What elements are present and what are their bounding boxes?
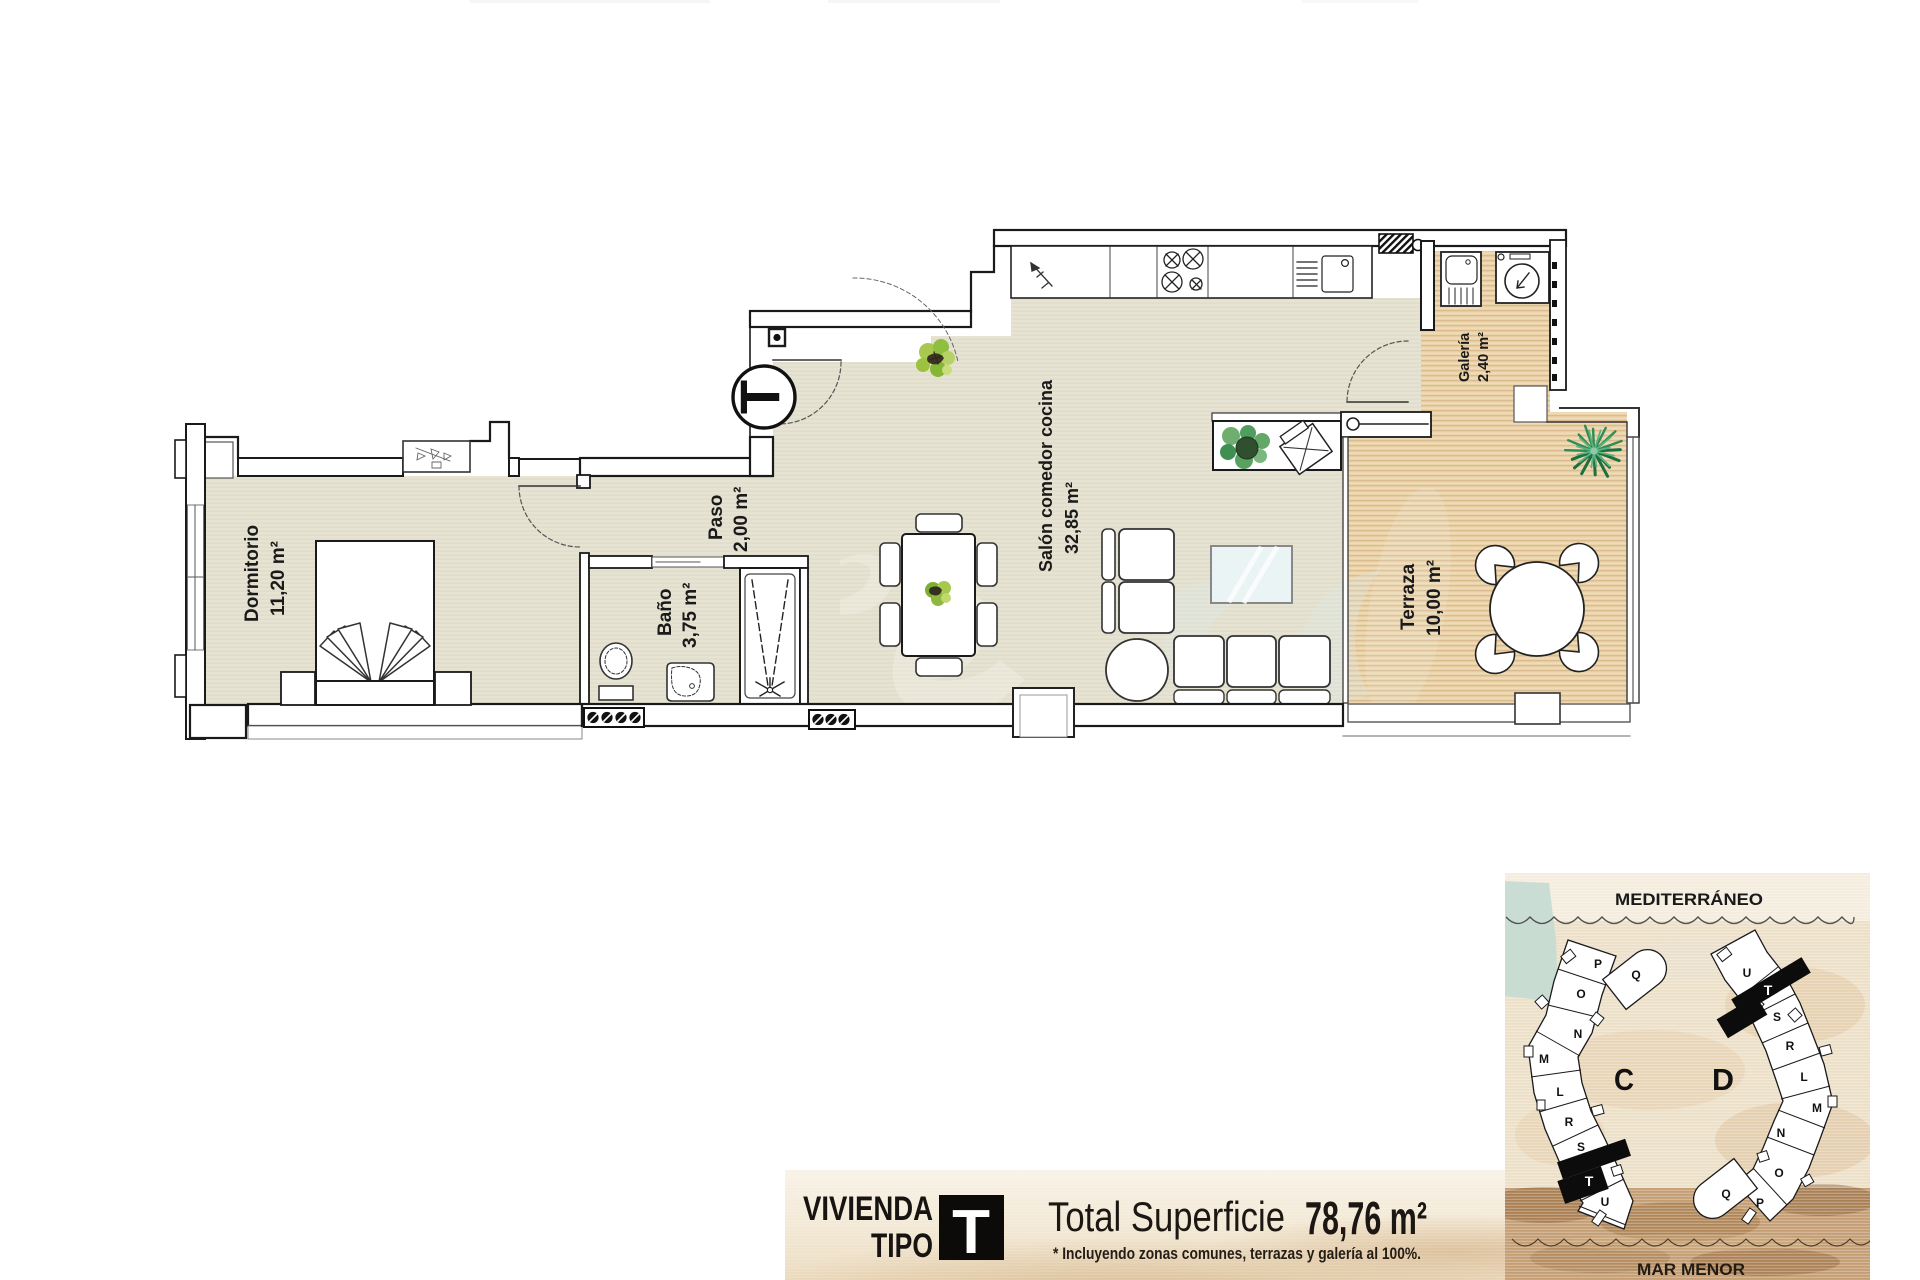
svg-text:O: O: [1576, 987, 1585, 1001]
svg-text:U: U: [1601, 1195, 1610, 1209]
svg-text:Galería: Galería: [1457, 332, 1473, 382]
svg-text:Paso: Paso: [706, 495, 727, 540]
svg-text:78,76 m²: 78,76 m²: [1305, 1192, 1427, 1244]
svg-text:11,20 m²: 11,20 m²: [268, 541, 289, 616]
svg-text:3,75 m²: 3,75 m²: [680, 583, 701, 648]
svg-text:T: T: [952, 1198, 990, 1267]
svg-text:MEDITERRÁNEO: MEDITERRÁNEO: [1615, 890, 1763, 909]
svg-text:Q: Q: [1631, 968, 1640, 982]
svg-text:O: O: [1774, 1166, 1783, 1180]
svg-text:MAR MENOR: MAR MENOR: [1637, 1260, 1745, 1279]
svg-text:Total Superficie: Total Superficie: [1048, 1193, 1285, 1240]
svg-text:* Incluyendo zonas comunes, te: * Incluyendo zonas comunes, terrazas y g…: [1053, 1244, 1421, 1263]
svg-text:D: D: [1712, 1062, 1734, 1097]
svg-text:32,85 m²: 32,85 m²: [1062, 482, 1082, 554]
svg-text:T: T: [1764, 982, 1773, 998]
svg-text:S: S: [1577, 1140, 1585, 1154]
svg-text:T: T: [1585, 1173, 1594, 1189]
svg-text:M: M: [1539, 1052, 1549, 1066]
svg-text:U: U: [1743, 966, 1752, 980]
svg-text:P: P: [1756, 1196, 1764, 1210]
svg-text:10,00 m²: 10,00 m²: [1424, 560, 1445, 636]
svg-text:N: N: [1777, 1126, 1786, 1140]
svg-text:S: S: [1773, 1010, 1781, 1024]
svg-text:N: N: [1574, 1027, 1583, 1041]
svg-text:2,40 m²: 2,40 m²: [1476, 332, 1492, 382]
svg-text:M: M: [1812, 1101, 1822, 1115]
svg-text:TIPO: TIPO: [871, 1227, 933, 1265]
svg-text:R: R: [1786, 1039, 1795, 1053]
svg-text:L: L: [1800, 1070, 1807, 1084]
svg-text:Salón comedor cocina: Salón comedor cocina: [1036, 379, 1056, 572]
svg-text:R: R: [1565, 1115, 1574, 1129]
svg-text:Terraza: Terraza: [1398, 563, 1419, 630]
svg-text:VIVIENDA: VIVIENDA: [803, 1190, 933, 1228]
svg-text:2,00 m²: 2,00 m²: [731, 487, 752, 552]
svg-text:C: C: [1614, 1062, 1634, 1097]
svg-text:L: L: [1556, 1085, 1563, 1099]
svg-text:Q: Q: [1721, 1187, 1730, 1201]
svg-text:P: P: [1594, 957, 1602, 971]
svg-text:Dormitorio: Dormitorio: [242, 525, 263, 622]
svg-text:T: T: [728, 380, 791, 414]
svg-text:Baño: Baño: [655, 589, 676, 637]
